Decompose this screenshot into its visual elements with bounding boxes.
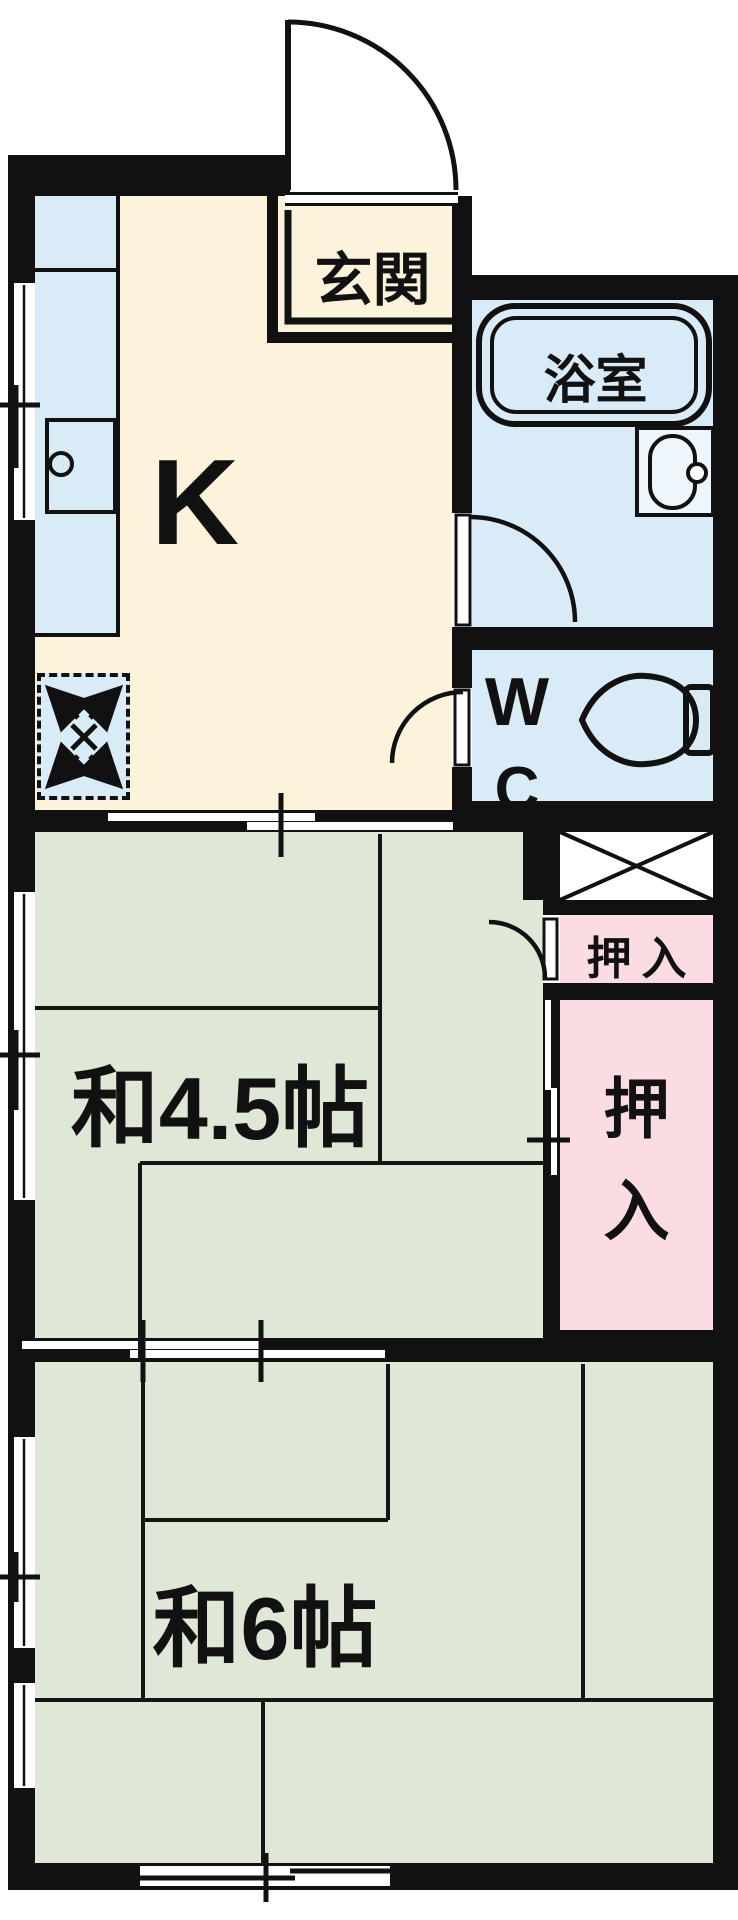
label-closet-large-top: 押 — [560, 1058, 713, 1160]
entrance-door-icon — [288, 20, 456, 190]
floor-plan: 玄関 K 浴室 W C 押入 押 入 和4.5帖 和6帖 — [0, 0, 738, 1920]
label-closet-large-bottom: 入 — [560, 1160, 713, 1262]
washing-machine-arrows — [52, 692, 116, 782]
washbasin-icon — [637, 428, 713, 515]
closet-small-door-icon — [489, 919, 557, 979]
label-closet-large: 押 入 — [560, 1058, 713, 1262]
label-room-6: 和6帖 — [95, 1558, 435, 1685]
label-room-4-5: 和4.5帖 — [30, 1038, 410, 1165]
toilet-icon — [582, 676, 713, 764]
label-closet-small: 押入 — [560, 922, 713, 987]
label-bath: 浴室 — [498, 338, 693, 413]
label-genkan: 玄関 — [290, 233, 455, 317]
label-kitchen: K — [130, 432, 260, 572]
kitchen-sink-icon — [35, 196, 118, 637]
washroom-door-icon — [456, 515, 575, 625]
closet-cross-icon — [560, 832, 713, 900]
label-wc: W C — [478, 658, 556, 834]
label-wc-w: W — [478, 658, 556, 746]
wc-door-icon — [392, 690, 469, 765]
label-wc-c: C — [478, 746, 556, 834]
